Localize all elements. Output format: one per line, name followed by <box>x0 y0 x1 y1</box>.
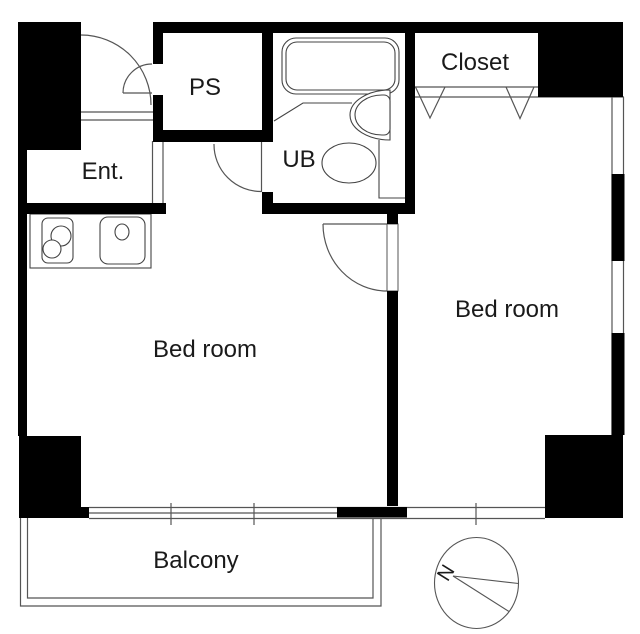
svg-text:Ent.: Ent. <box>82 158 125 185</box>
svg-text:Bed room: Bed room <box>153 336 257 363</box>
svg-text:Closet: Closet <box>441 49 509 76</box>
svg-text:Balcony: Balcony <box>153 547 238 574</box>
svg-text:PS: PS <box>189 74 221 101</box>
svg-text:UB: UB <box>282 146 315 173</box>
svg-text:Bed room: Bed room <box>455 296 559 323</box>
